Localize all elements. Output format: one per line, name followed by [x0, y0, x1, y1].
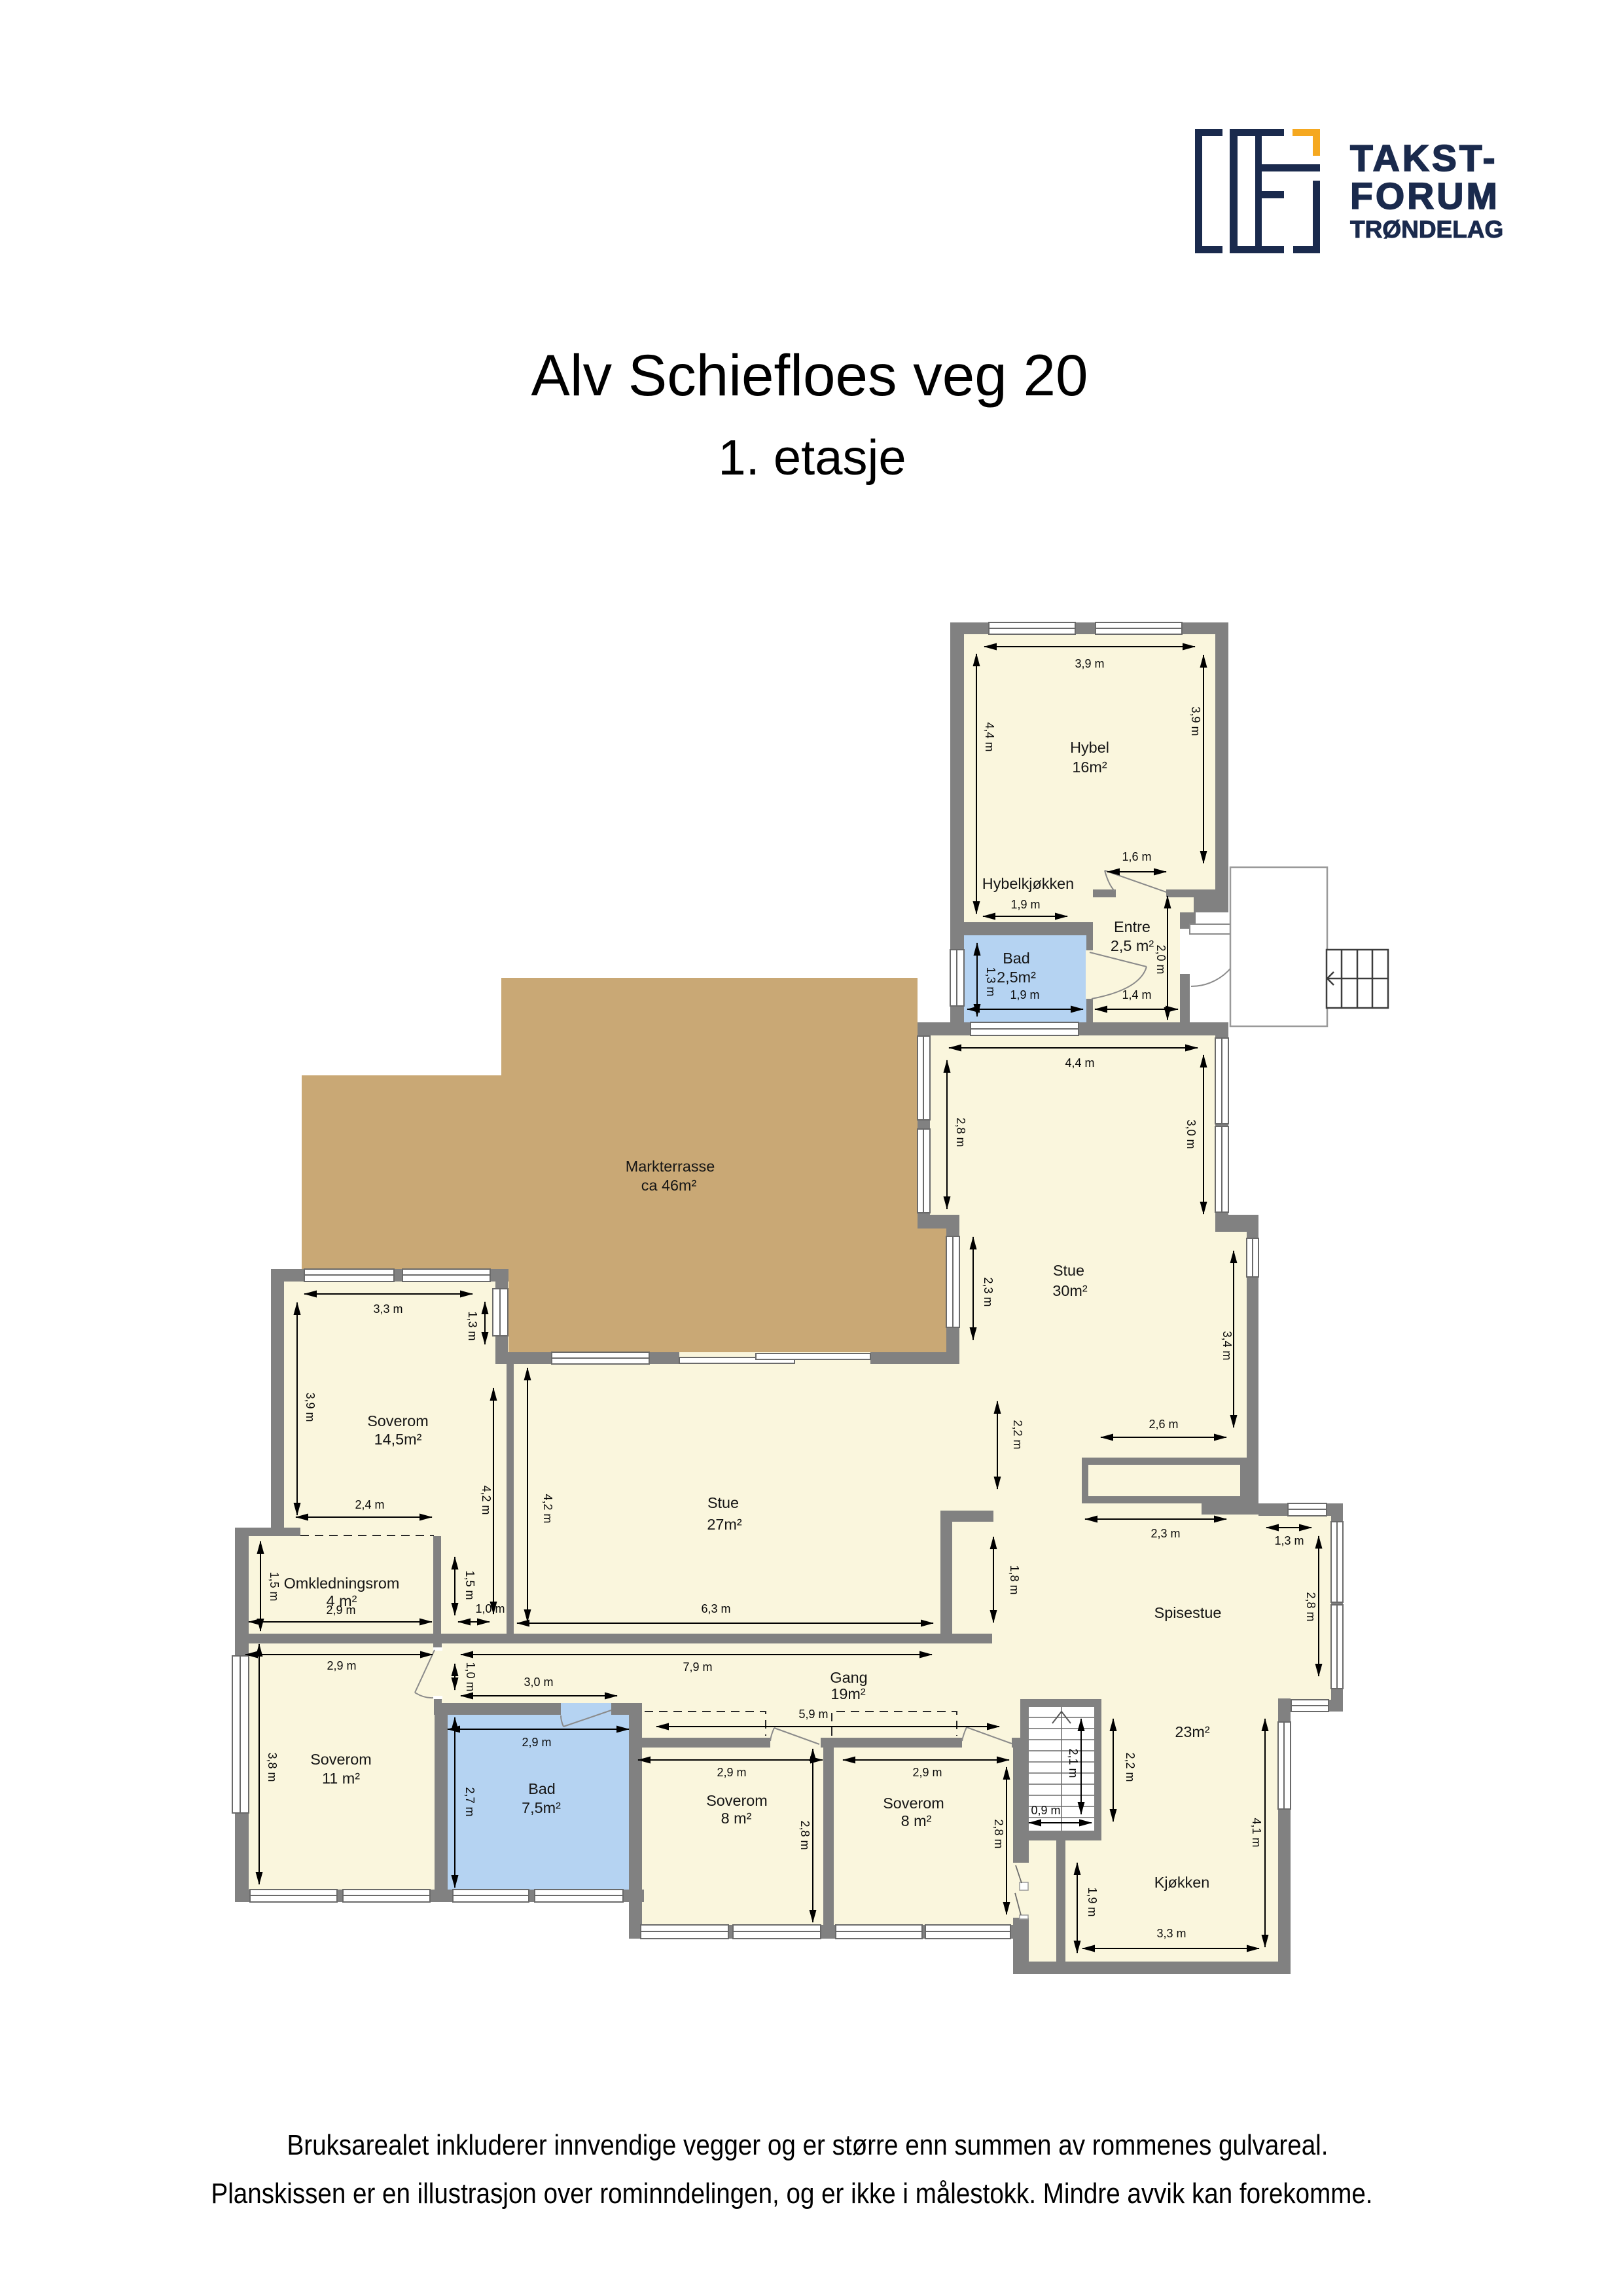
- svg-text:2,8 m: 2,8 m: [798, 1820, 811, 1850]
- svg-text:2,7 m: 2,7 m: [463, 1787, 476, 1816]
- svg-text:23m²: 23m²: [1175, 1723, 1210, 1740]
- svg-text:7,9 m: 7,9 m: [683, 1660, 712, 1674]
- svg-text:Spisestue: Spisestue: [1154, 1604, 1222, 1621]
- svg-text:2,4 m: 2,4 m: [355, 1498, 384, 1511]
- svg-text:4,2 m: 4,2 m: [480, 1485, 493, 1515]
- svg-text:6,3 m: 6,3 m: [701, 1602, 730, 1615]
- svg-text:2,5 m²: 2,5 m²: [1111, 937, 1154, 954]
- svg-text:Hybelkjøkken: Hybelkjøkken: [982, 875, 1074, 892]
- svg-text:2,2 m: 2,2 m: [1011, 1420, 1024, 1449]
- svg-text:1,9 m: 1,9 m: [1010, 988, 1039, 1001]
- svg-text:ca 46m²: ca 46m²: [641, 1177, 697, 1194]
- svg-text:4,4 m: 4,4 m: [1065, 1056, 1094, 1069]
- svg-text:2,8 m: 2,8 m: [954, 1117, 967, 1147]
- svg-text:Planskissen er en illustrasjon: Planskissen er en illustrasjon over romi…: [211, 2178, 1373, 2210]
- svg-text:Soverom: Soverom: [367, 1412, 429, 1429]
- svg-text:Soverom: Soverom: [310, 1751, 372, 1768]
- svg-text:TAKST-: TAKST-: [1350, 137, 1498, 179]
- svg-text:27m²: 27m²: [707, 1516, 742, 1533]
- svg-text:3,9 m: 3,9 m: [304, 1392, 317, 1422]
- svg-text:Bad: Bad: [1003, 950, 1030, 967]
- svg-text:7,5m²: 7,5m²: [522, 1799, 561, 1816]
- svg-text:2,9 m: 2,9 m: [522, 1736, 551, 1749]
- svg-text:3,0 m: 3,0 m: [1185, 1119, 1198, 1149]
- svg-text:TRØNDELAG: TRØNDELAG: [1350, 216, 1503, 243]
- svg-text:8 m²: 8 m²: [901, 1812, 932, 1829]
- svg-text:Stue: Stue: [1053, 1262, 1084, 1279]
- svg-text:3,9 m: 3,9 m: [1189, 706, 1202, 736]
- svg-text:Omkledningsrom: Omkledningsrom: [284, 1575, 400, 1592]
- svg-text:14,5m²: 14,5m²: [374, 1431, 422, 1448]
- svg-text:3,3 m: 3,3 m: [373, 1302, 402, 1316]
- svg-text:1,9 m: 1,9 m: [1010, 898, 1040, 911]
- svg-text:1,8 m: 1,8 m: [1008, 1565, 1021, 1594]
- svg-text:Soverom: Soverom: [706, 1792, 768, 1809]
- svg-text:16m²: 16m²: [1072, 759, 1107, 776]
- svg-text:0,9 m: 0,9 m: [1031, 1804, 1060, 1817]
- svg-text:Bruksarealet inkluderer innven: Bruksarealet inkluderer innvendige vegge…: [287, 2129, 1329, 2161]
- svg-text:2,9 m: 2,9 m: [912, 1766, 942, 1779]
- svg-text:2,6 m: 2,6 m: [1149, 1418, 1178, 1431]
- svg-text:1,0 m: 1,0 m: [475, 1602, 505, 1615]
- svg-text:Alv Schiefloes veg 20: Alv Schiefloes veg 20: [531, 342, 1088, 408]
- svg-text:2,9 m: 2,9 m: [717, 1766, 746, 1779]
- svg-text:2,0 m: 2,0 m: [1154, 944, 1168, 974]
- svg-text:3,0 m: 3,0 m: [524, 1676, 553, 1689]
- svg-text:2,3 m: 2,3 m: [1150, 1527, 1180, 1540]
- svg-text:19m²: 19m²: [830, 1685, 866, 1702]
- svg-text:Entre: Entre: [1114, 918, 1150, 935]
- svg-text:Bad: Bad: [528, 1780, 556, 1797]
- svg-text:1,5 m: 1,5 m: [463, 1570, 476, 1600]
- svg-text:1,0 m: 1,0 m: [464, 1662, 477, 1691]
- svg-text:Soverom: Soverom: [883, 1795, 944, 1812]
- svg-text:8 m²: 8 m²: [721, 1810, 752, 1827]
- svg-text:3,8 m: 3,8 m: [266, 1752, 279, 1782]
- svg-text:Gang: Gang: [830, 1669, 867, 1686]
- svg-text:4 m²: 4 m²: [327, 1592, 357, 1609]
- svg-text:4,2 m: 4,2 m: [541, 1494, 554, 1523]
- svg-text:1,9 m: 1,9 m: [1086, 1887, 1099, 1916]
- svg-text:30m²: 30m²: [1052, 1282, 1088, 1299]
- svg-text:2,1 m: 2,1 m: [1067, 1748, 1080, 1778]
- svg-text:2,8 m: 2,8 m: [1304, 1592, 1317, 1621]
- svg-text:Kjøkken: Kjøkken: [1154, 1874, 1210, 1891]
- svg-text:2,5m²: 2,5m²: [997, 969, 1036, 986]
- svg-text:2,8 m: 2,8 m: [992, 1819, 1005, 1848]
- svg-text:2,9 m: 2,9 m: [327, 1659, 356, 1672]
- svg-text:1,5 m: 1,5 m: [268, 1571, 281, 1601]
- svg-text:2,3 m: 2,3 m: [982, 1277, 995, 1306]
- svg-text:4,1 m: 4,1 m: [1250, 1818, 1263, 1847]
- svg-text:3,9 m: 3,9 m: [1075, 657, 1104, 670]
- svg-text:FORUM: FORUM: [1350, 175, 1500, 217]
- svg-text:Stue: Stue: [707, 1494, 739, 1511]
- svg-text:1,3 m: 1,3 m: [1274, 1534, 1304, 1547]
- svg-text:2,2 m: 2,2 m: [1124, 1752, 1137, 1782]
- svg-text:3,4 m: 3,4 m: [1221, 1331, 1234, 1360]
- svg-text:1,6 m: 1,6 m: [1122, 850, 1151, 863]
- svg-text:4,4 m: 4,4 m: [983, 722, 996, 751]
- svg-text:1,3 m: 1,3 m: [466, 1311, 479, 1340]
- svg-text:11 m²: 11 m²: [322, 1770, 360, 1787]
- svg-text:Markterrasse: Markterrasse: [626, 1158, 715, 1175]
- svg-text:1. etasje: 1. etasje: [718, 430, 906, 486]
- svg-text:5,9 m: 5,9 m: [798, 1708, 828, 1721]
- svg-text:Hybel: Hybel: [1070, 739, 1109, 756]
- svg-text:1,4 m: 1,4 m: [1122, 988, 1151, 1001]
- svg-text:3,3 m: 3,3 m: [1156, 1927, 1186, 1940]
- svg-text:1,3 m: 1,3 m: [984, 967, 997, 996]
